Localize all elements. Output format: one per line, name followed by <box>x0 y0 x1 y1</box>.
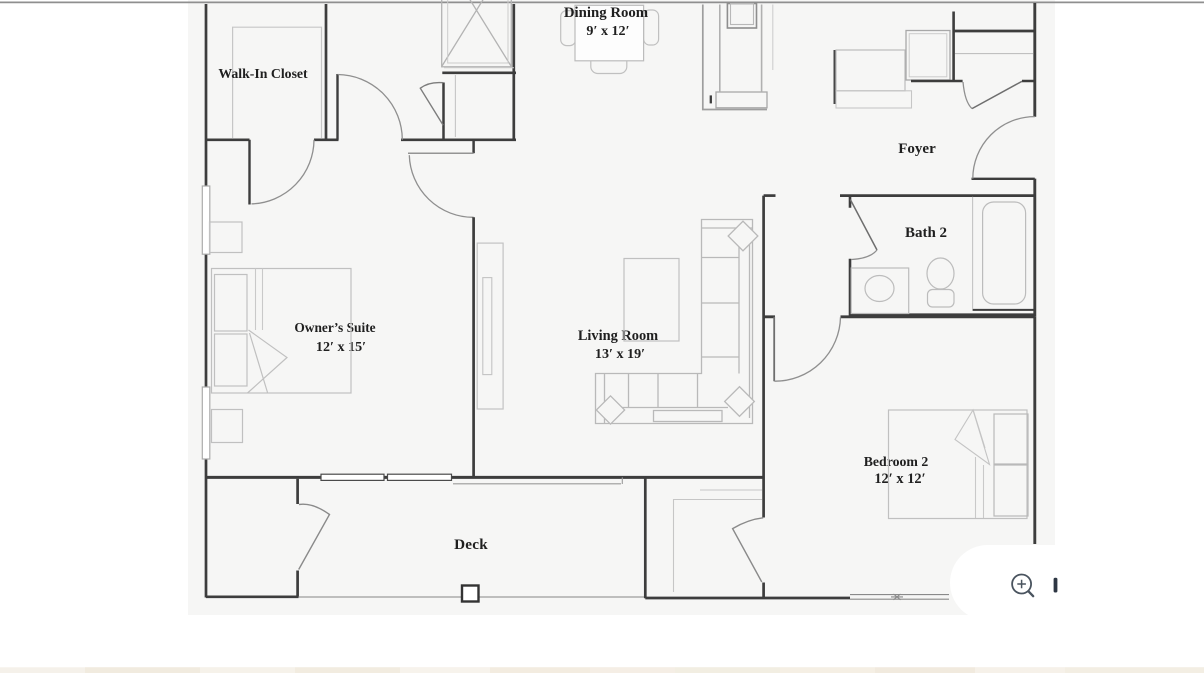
svg-text:Deck: Deck <box>454 536 488 553</box>
svg-text:Living Room: Living Room <box>578 328 658 344</box>
svg-text:12′ x 12′: 12′ x 12′ <box>874 471 925 487</box>
svg-text:9′ x 12′: 9′ x 12′ <box>586 23 629 39</box>
svg-text:Foyer: Foyer <box>898 141 936 157</box>
svg-text:13′ x 19′: 13′ x 19′ <box>595 346 645 362</box>
svg-text:Bedroom 2: Bedroom 2 <box>864 454 929 469</box>
svg-text:Dining Room: Dining Room <box>564 5 649 21</box>
svg-text:Owner’s Suite: Owner’s Suite <box>294 320 375 335</box>
svg-text:12′ x 15′: 12′ x 15′ <box>316 339 366 355</box>
svg-text:Walk-In Closet: Walk-In Closet <box>218 66 308 81</box>
svg-text:Bath 2: Bath 2 <box>905 225 947 241</box>
